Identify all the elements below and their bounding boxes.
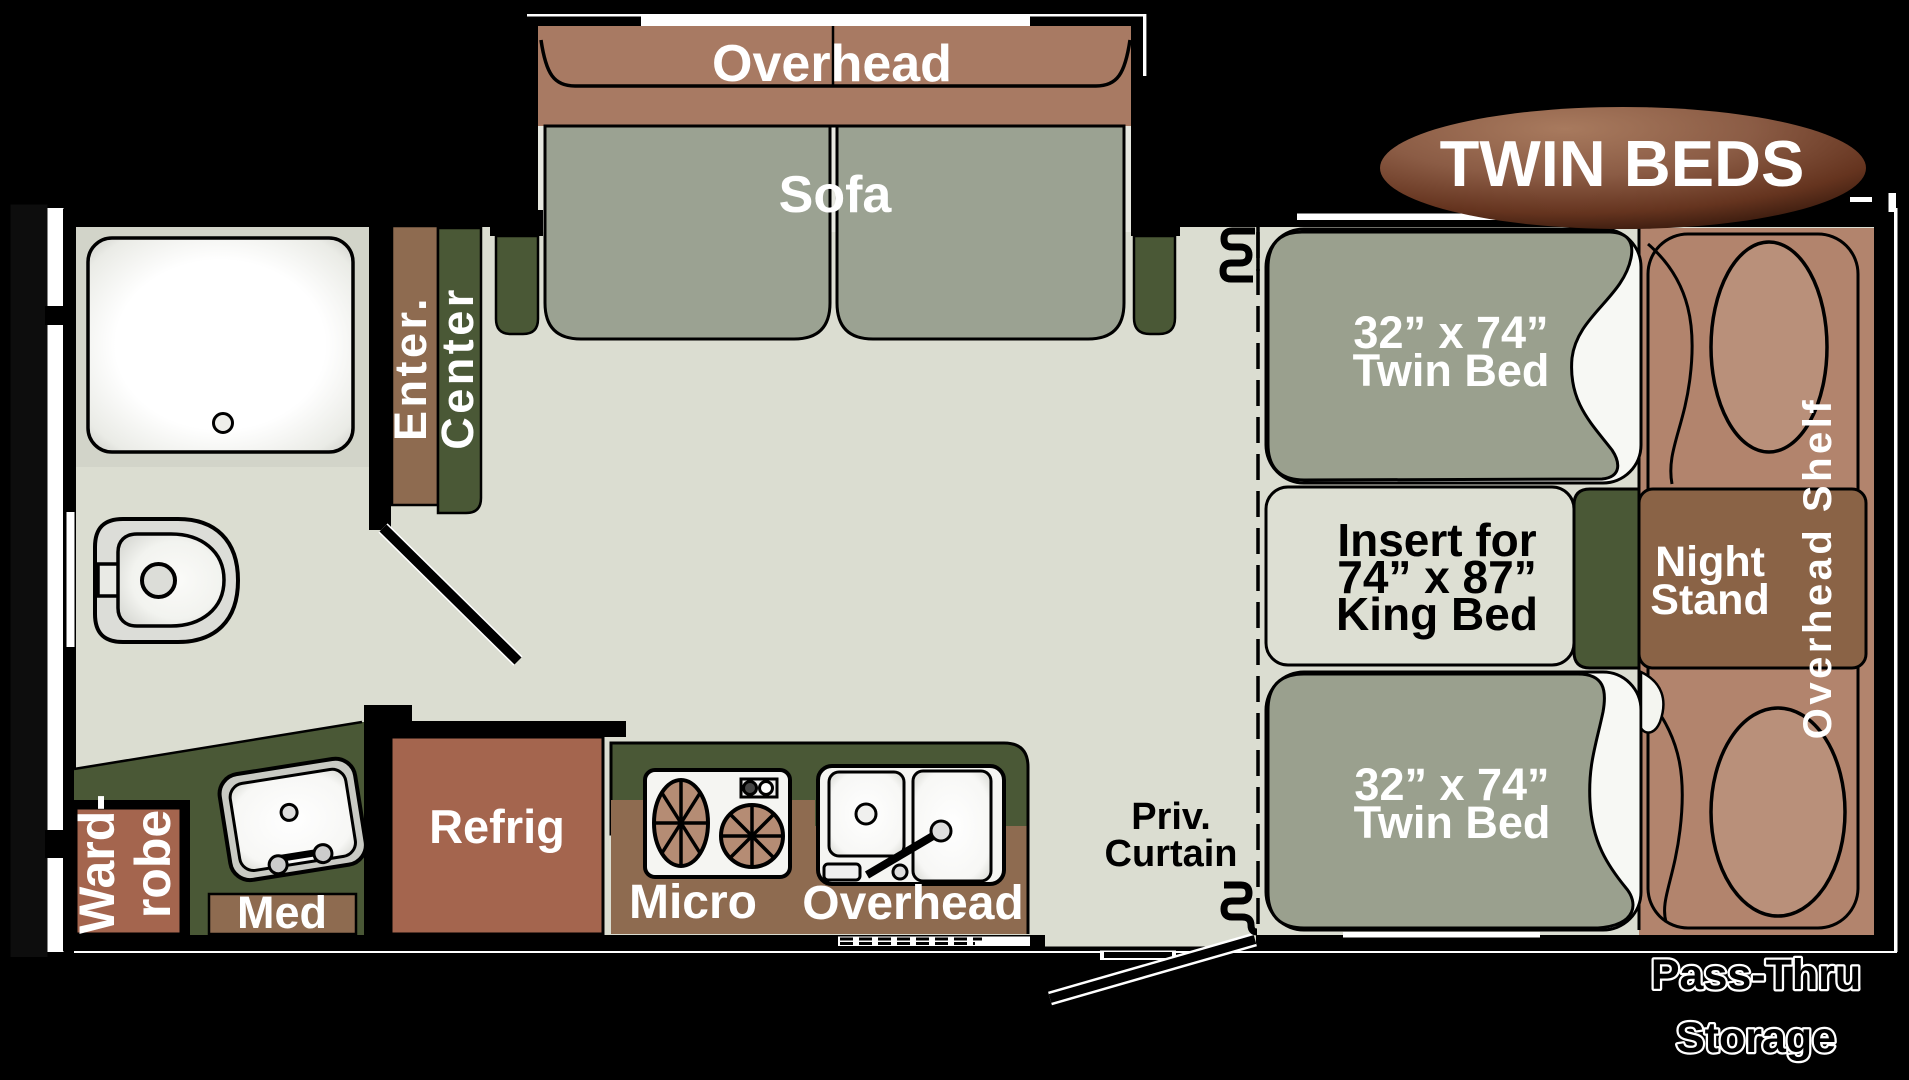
svg-text:King Bed: King Bed: [1336, 588, 1538, 640]
svg-text:Pass-Thru: Pass-Thru: [1651, 951, 1861, 999]
svg-text:Ward-: Ward-: [69, 794, 125, 934]
svg-text:Refrig: Refrig: [429, 800, 565, 853]
svg-text:Overhead: Overhead: [802, 877, 1023, 930]
svg-text:Twin Bed: Twin Bed: [1353, 345, 1550, 396]
svg-text:Twin Bed: Twin Bed: [1354, 797, 1551, 848]
svg-text:Center: Center: [432, 286, 483, 450]
svg-text:Overhead: Overhead: [712, 35, 952, 93]
svg-text:Curtain: Curtain: [1105, 833, 1238, 875]
svg-text:Micro: Micro: [629, 876, 757, 929]
svg-text:Overhead Shelf: Overhead Shelf: [1796, 397, 1840, 739]
svg-text:Med: Med: [237, 887, 327, 938]
svg-text:Storage: Storage: [1676, 1014, 1836, 1062]
svg-text:Stand: Stand: [1650, 576, 1769, 624]
svg-text:Sofa: Sofa: [779, 166, 893, 224]
svg-text:robe: robe: [125, 810, 181, 918]
svg-text:Enter.: Enter.: [385, 295, 436, 441]
svg-text:Priv.: Priv.: [1131, 796, 1211, 838]
svg-text:TWIN BEDS: TWIN BEDS: [1440, 127, 1805, 200]
